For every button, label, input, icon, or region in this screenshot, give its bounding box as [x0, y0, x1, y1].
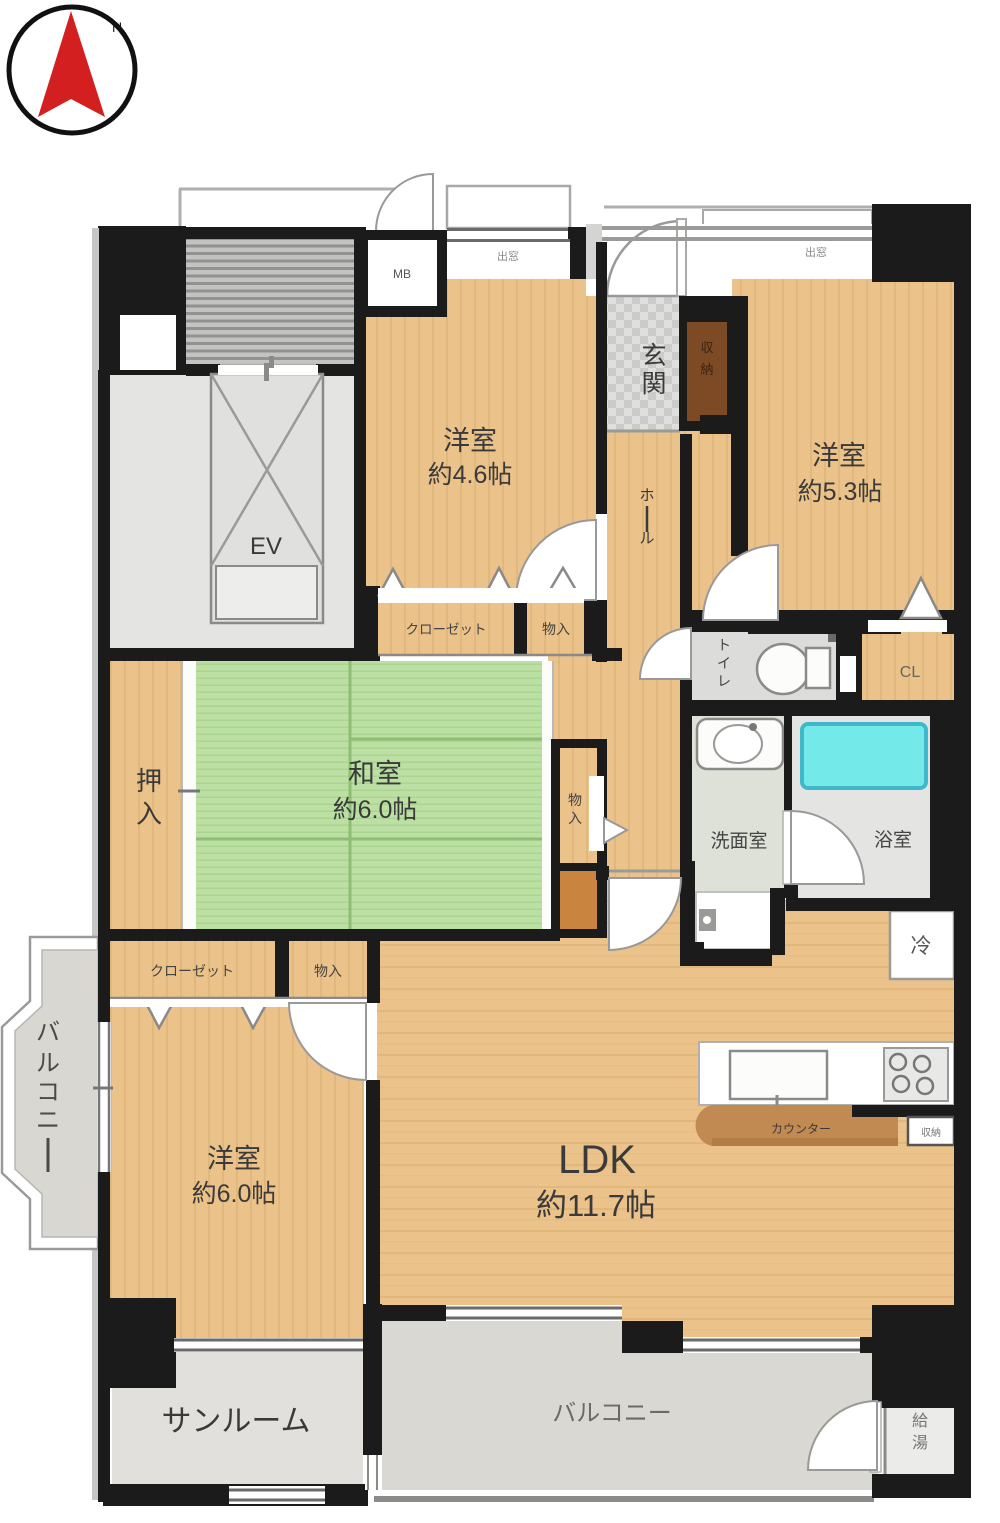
svg-text:約11.7帖: 約11.7帖	[536, 1188, 656, 1223]
svg-text:クローゼット: クローゼット	[406, 622, 487, 637]
svg-text:玄: 玄	[641, 342, 666, 370]
svg-text:出窓: 出窓	[497, 249, 519, 263]
svg-text:カウンター: カウンター	[771, 1122, 831, 1136]
svg-text:洋室: 洋室	[207, 1144, 261, 1174]
svg-text:EV: EV	[250, 533, 282, 560]
svg-text:出窓: 出窓	[805, 245, 827, 259]
svg-text:関: 関	[641, 370, 666, 398]
svg-text:LDK: LDK	[558, 1138, 636, 1182]
svg-text:バ: バ	[36, 1019, 60, 1046]
svg-text:収: 収	[700, 340, 713, 355]
svg-text:洋室: 洋室	[443, 426, 497, 456]
svg-text:ニ: ニ	[36, 1107, 60, 1134]
svg-text:約6.0帖: 約6.0帖	[333, 796, 418, 824]
svg-text:レ: レ	[717, 673, 731, 689]
svg-text:N: N	[112, 19, 122, 35]
svg-text:ル: ル	[36, 1050, 60, 1077]
svg-text:和室: 和室	[348, 759, 402, 789]
svg-text:押: 押	[136, 766, 162, 796]
svg-text:クローゼット: クローゼット	[150, 963, 234, 979]
svg-text:約5.3帖: 約5.3帖	[798, 478, 883, 506]
svg-text:湯: 湯	[912, 1434, 928, 1452]
svg-text:洗面室: 洗面室	[710, 830, 767, 852]
svg-text:洋室: 洋室	[812, 441, 866, 471]
svg-text:ル: ル	[639, 530, 654, 547]
svg-text:浴室: 浴室	[874, 829, 912, 851]
svg-text:ホ: ホ	[639, 487, 654, 504]
svg-text:イ: イ	[717, 655, 731, 671]
svg-text:収納: 収納	[921, 1126, 941, 1139]
svg-text:コ: コ	[36, 1079, 60, 1106]
svg-text:物入: 物入	[542, 621, 570, 637]
svg-text:サンルーム: サンルーム	[161, 1405, 310, 1438]
svg-text:バルコニー: バルコニー	[552, 1400, 672, 1427]
svg-text:給: 給	[912, 1412, 928, 1430]
svg-text:物入: 物入	[314, 963, 342, 979]
svg-text:納: 納	[700, 362, 713, 377]
svg-text:約6.0帖: 約6.0帖	[192, 1180, 277, 1208]
svg-text:ト: ト	[717, 637, 731, 653]
svg-text:物: 物	[568, 792, 582, 808]
svg-text:入: 入	[568, 810, 582, 826]
svg-text:入: 入	[136, 799, 162, 829]
svg-text:MB: MB	[393, 267, 411, 281]
svg-text:約4.6帖: 約4.6帖	[428, 461, 513, 489]
svg-text:冷: 冷	[911, 935, 932, 958]
svg-text:CL: CL	[900, 664, 921, 681]
